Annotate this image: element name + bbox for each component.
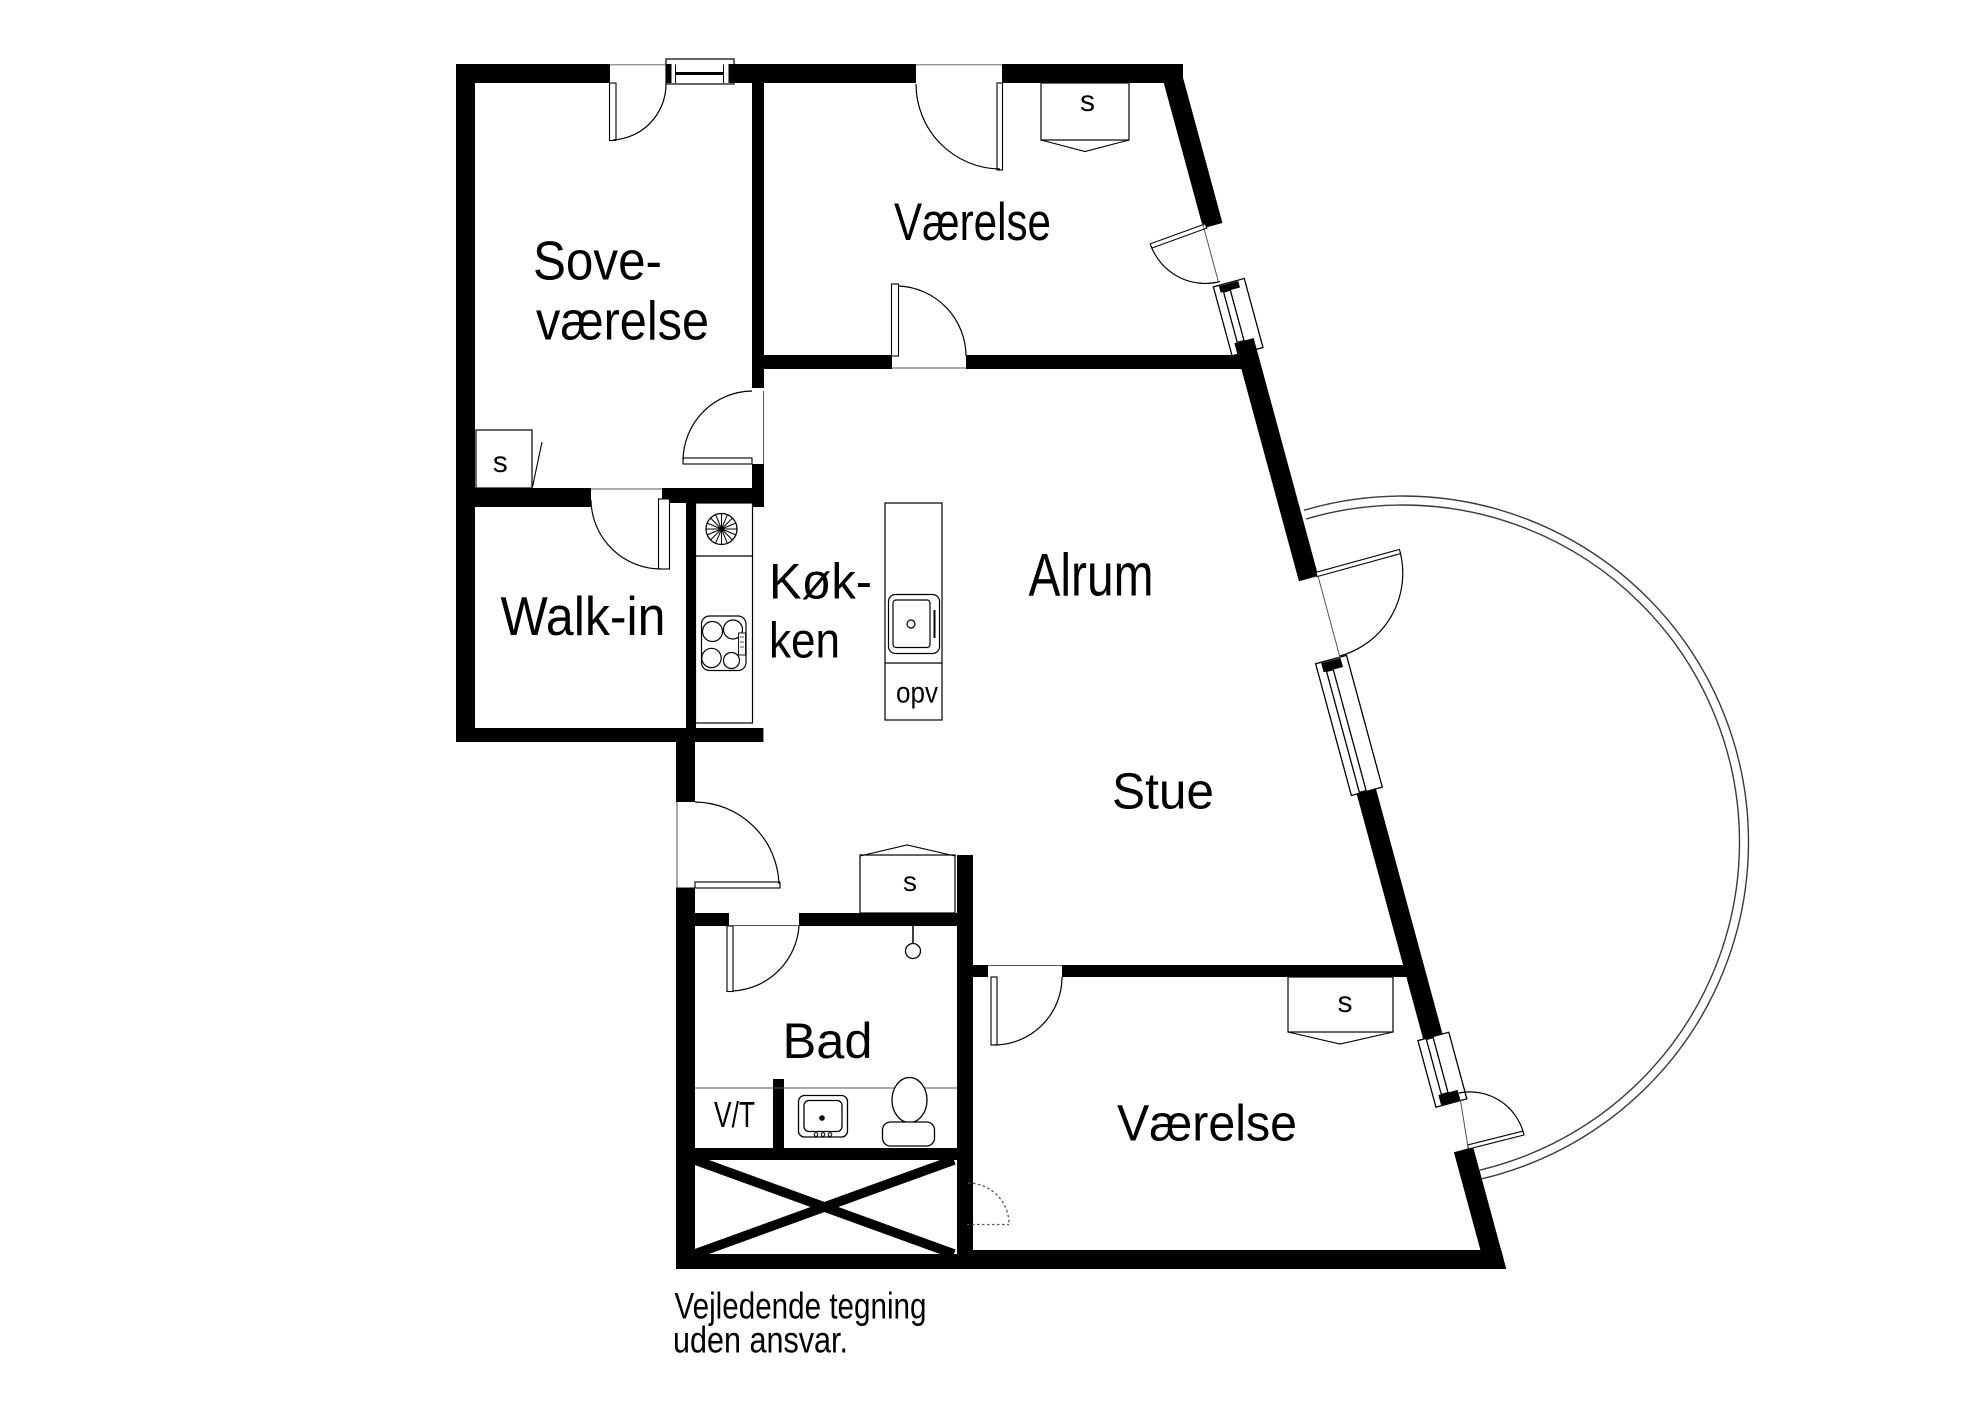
svg-text:Walk-in: Walk-in	[501, 585, 666, 647]
svg-text:Alrum: Alrum	[1029, 542, 1154, 609]
svg-text:s: s	[493, 446, 508, 479]
svg-text:værelse: værelse	[536, 290, 709, 352]
svg-text:V/T: V/T	[714, 1094, 755, 1135]
svg-text:Stue: Stue	[1112, 763, 1214, 820]
svg-text:opv: opv	[896, 677, 938, 710]
svg-text:Værelse: Værelse	[1117, 1095, 1297, 1152]
svg-text:uden ansvar.: uden ansvar.	[673, 1320, 848, 1361]
svg-text:Bad: Bad	[783, 1013, 873, 1069]
svg-text:s: s	[1338, 986, 1353, 1019]
svg-text:Sove-: Sove-	[533, 230, 662, 292]
svg-text:ken: ken	[769, 613, 840, 669]
svg-text:s: s	[903, 866, 917, 897]
svg-text:Værelse: Værelse	[894, 193, 1051, 252]
svg-text:Køk-: Køk-	[769, 554, 872, 610]
svg-text:s: s	[1080, 85, 1095, 118]
